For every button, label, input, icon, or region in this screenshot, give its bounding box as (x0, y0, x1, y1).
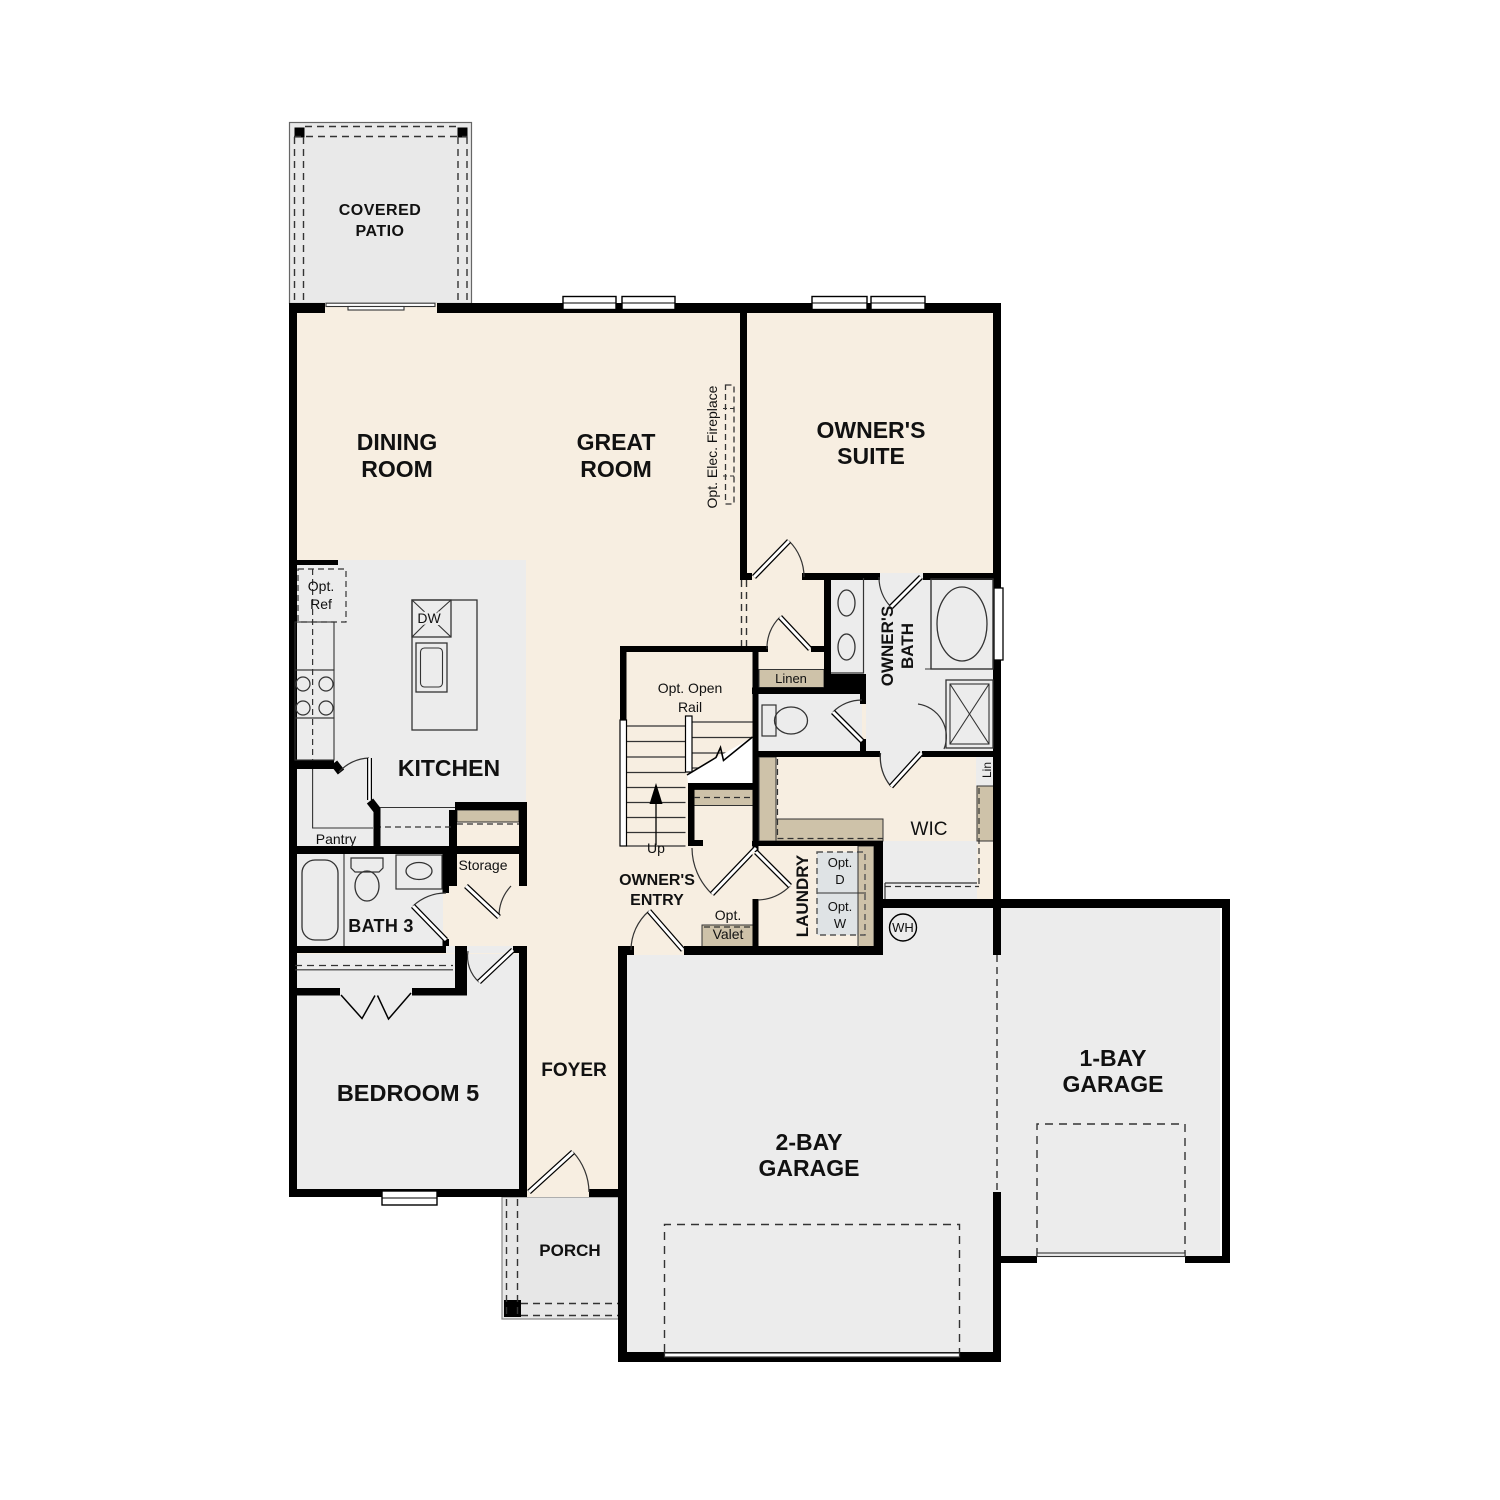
svg-text:Linen: Linen (775, 671, 807, 686)
svg-text:DINING: DINING (357, 429, 438, 455)
svg-text:KITCHEN: KITCHEN (398, 755, 500, 781)
svg-text:GARAGE: GARAGE (1063, 1071, 1164, 1097)
svg-text:Opt.: Opt. (308, 578, 334, 594)
svg-text:Opt.: Opt. (828, 899, 853, 914)
svg-text:DW: DW (417, 610, 441, 626)
svg-text:PATIO: PATIO (355, 223, 404, 240)
svg-text:PORCH: PORCH (539, 1241, 600, 1260)
svg-text:Valet: Valet (713, 926, 744, 942)
svg-text:BATH: BATH (898, 623, 917, 669)
svg-text:OWNER'S: OWNER'S (817, 417, 926, 443)
svg-text:Pantry: Pantry (316, 831, 356, 847)
svg-text:D: D (835, 872, 844, 887)
svg-text:BATH 3: BATH 3 (348, 916, 413, 936)
svg-text:Ref: Ref (310, 596, 332, 612)
svg-text:SUITE: SUITE (837, 443, 905, 469)
svg-text:ROOM: ROOM (361, 456, 433, 482)
svg-text:Rail: Rail (678, 699, 702, 715)
svg-text:OWNER'S: OWNER'S (619, 872, 695, 889)
svg-text:GARAGE: GARAGE (759, 1155, 860, 1181)
svg-text:Storage: Storage (458, 857, 507, 873)
svg-text:ENTRY: ENTRY (630, 892, 684, 909)
svg-text:COVERED: COVERED (339, 202, 422, 219)
svg-text:Up: Up (647, 840, 665, 856)
svg-text:FOYER: FOYER (541, 1060, 607, 1081)
svg-text:Opt. Open: Opt. Open (658, 680, 723, 696)
svg-text:Lin: Lin (980, 762, 994, 778)
svg-text:WIC: WIC (911, 819, 948, 840)
svg-text:WH: WH (892, 920, 914, 935)
svg-text:Opt.: Opt. (828, 855, 853, 870)
svg-text:Opt. Elec. Fireplace: Opt. Elec. Fireplace (704, 385, 720, 508)
svg-text:GREAT: GREAT (577, 429, 656, 455)
svg-text:W: W (834, 916, 847, 931)
svg-text:OWNER'S: OWNER'S (878, 606, 897, 687)
svg-text:Opt.: Opt. (715, 907, 741, 923)
svg-text:LAUNDRY: LAUNDRY (793, 854, 812, 937)
svg-text:1-BAY: 1-BAY (1080, 1045, 1147, 1071)
svg-text:BEDROOM 5: BEDROOM 5 (337, 1080, 479, 1106)
svg-text:ROOM: ROOM (580, 456, 652, 482)
svg-text:2-BAY: 2-BAY (776, 1129, 843, 1155)
